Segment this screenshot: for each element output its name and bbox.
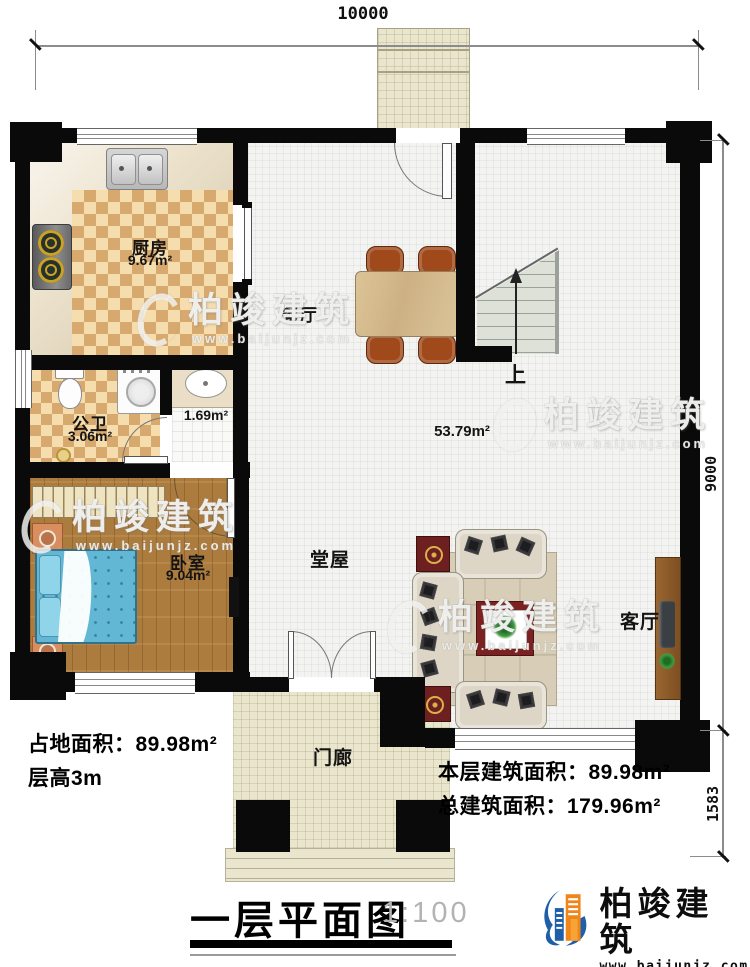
porch-steps [225,848,455,882]
kitchen-area: 9.67m² [110,252,190,268]
note-total-area: 总建筑面积：179.96m² [438,790,661,820]
bathroom-area: 3.06m² [56,428,124,444]
sofa-pillow [491,535,509,553]
sofa-loveseat [455,529,547,579]
note-floor-area: 本层建筑面积：89.98m² [438,756,670,786]
bed [35,549,137,644]
wall-washroom-right [233,355,248,478]
bedroom-tv [229,577,239,617]
washroom-area: 1.69m² [178,407,234,423]
wall-bathroom-washroom [160,370,172,417]
brand-logo: 柏竣建筑 www.baijunjz.com [538,886,750,967]
step-line [378,71,469,73]
wall-right [680,128,700,755]
porch-column [236,800,290,852]
open-space-area: 53.79m² [424,423,500,440]
kitchen-sink [106,148,168,190]
hall-label: 堂屋 [296,545,364,572]
dining-chair [366,334,404,364]
bed-blanket [57,549,95,644]
basin-drain [203,381,208,386]
porch-door-opening [289,677,374,692]
sofa-pillow [466,690,485,709]
plan-title: 一层平面图 [190,888,410,946]
sofa-chaise [455,681,547,730]
sofa-pillow [518,692,535,709]
bedside-lamp [39,530,56,547]
sofa-pillow [419,581,437,599]
wash-basin [185,369,227,398]
stairwell-window [527,128,625,145]
sofa-pillow [420,659,438,677]
plant [659,652,675,670]
gas-stove [32,224,72,290]
dimension-line-right-upper [722,140,724,732]
brand-name: 柏竣建筑 [599,886,750,959]
note-land-area: 占地面积：89.98m² [28,728,217,758]
plan-scale: 1:100 [382,897,470,930]
wardrobe [32,486,165,518]
living-room-label: 客厅 [606,607,674,634]
kitchen-door-leaf [244,206,252,283]
bed-pillow [39,597,61,637]
stairs-direction-line [515,282,517,354]
sofa-pillow [464,536,483,555]
kitchen-floor [72,190,233,355]
dimension-height: 9000 [702,428,720,492]
sink-drain [147,166,152,171]
wall-living-bottom [425,728,457,748]
wall-kitchen-bathroom [15,355,248,370]
sink-drain [119,166,124,171]
bathroom-window [15,350,32,408]
step-line [378,49,469,51]
toilet-bowl [58,378,82,409]
entry-door-opening [396,128,460,143]
brand-website: www.baijunjz.com [599,959,750,967]
extension-line [35,30,36,90]
dimension-porch-depth: 1583 [704,766,722,822]
wall-hall-bottom-left [233,677,289,692]
back-porch-steps [377,28,470,132]
sofa-pillow [420,607,439,626]
washing-machine [117,367,162,414]
porch-door-leaf-right [370,631,376,679]
note-floor-height: 层高3m [28,762,102,792]
title-underline-thin [190,954,456,956]
entry-door-leaf [442,143,452,199]
stairs-up-arrow [510,268,522,283]
bedroom-area: 9.04m² [152,567,224,583]
extension-line [690,856,726,857]
title-underline-thick [190,940,452,948]
floor-drain [56,448,71,463]
bedroom-door-opening [170,462,233,478]
washer-controls [123,370,155,373]
sofa-pillow [420,634,437,651]
door-hinge [242,202,252,208]
stairs-up-label: 上 [498,359,534,389]
dining-table [355,271,460,337]
wall-pier-top-right [666,121,712,163]
wall-pier-top-left [10,122,62,162]
side-table [416,536,450,572]
stove-burner [38,230,64,256]
sofa-main [412,572,464,693]
sofa-pillow [516,537,536,557]
stove-burner [38,257,64,283]
wall-porch-living-connector [380,677,425,747]
porch-label: 门廊 [299,743,367,770]
bathroom-door-leaf [124,456,168,464]
bedroom-door-leaf [227,478,235,538]
washer-door [126,377,156,407]
kitchen-window [77,128,197,145]
plant [493,615,517,639]
dimension-line-right-lower [722,732,724,858]
dimension-width: 10000 [328,4,398,24]
dining-label: 餐厅 [268,301,332,326]
dimension-line-top [35,45,699,47]
porch-door-leaf-left [288,631,294,679]
bedroom-window [75,672,195,694]
floor-plan-canvas: 10000 9000 1583 [0,0,750,967]
door-hinge [242,279,252,285]
extension-line [698,30,699,90]
bed-pillow [39,555,61,595]
wall-stairwell-left [456,143,475,360]
wall-left [15,128,30,700]
dining-chair [418,334,456,364]
brand-logo-icon [538,886,591,948]
living-room-window [455,728,635,750]
sofa-pillow [492,688,510,706]
